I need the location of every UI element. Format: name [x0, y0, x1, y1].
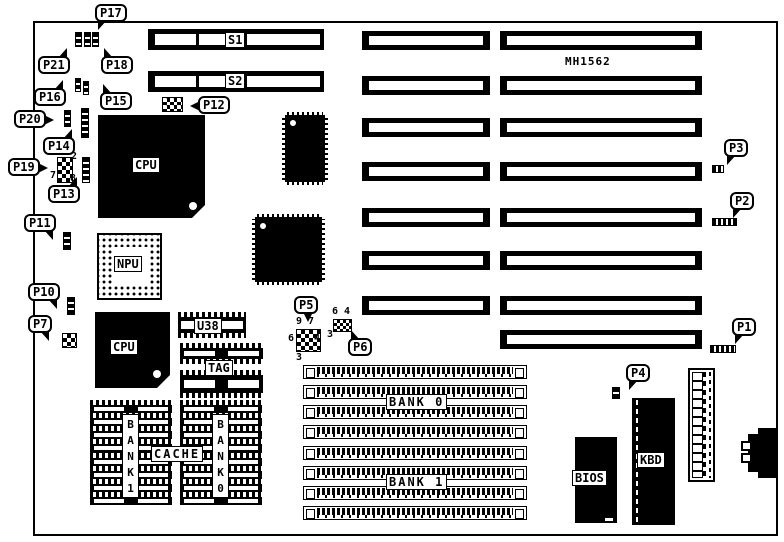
jumper-p17	[84, 32, 91, 47]
callout-p7: P7	[28, 315, 52, 333]
s2-label: S2	[225, 73, 245, 89]
isa-slot	[500, 162, 702, 181]
cpu-pin1-dot	[189, 202, 197, 210]
cache-bank0-label: BANK0	[212, 414, 229, 498]
callout-p2: P2	[730, 192, 754, 210]
bank1-label: BANK 1	[386, 474, 447, 490]
callout-label: P12	[203, 98, 225, 112]
kbd-label: KBD	[637, 452, 665, 468]
callout-p3: P3	[724, 139, 748, 157]
switch-segment	[155, 34, 196, 45]
qfp-chip	[285, 115, 325, 182]
switch-segment	[155, 76, 196, 87]
callout-label: P21	[43, 58, 65, 72]
isa-slot	[500, 208, 702, 227]
isa-slot	[500, 251, 702, 270]
isa-slot	[362, 31, 490, 50]
callout-p5: P5	[294, 296, 318, 314]
isa-slot	[500, 31, 702, 50]
isa-slot	[500, 296, 702, 315]
pin-number: 3	[296, 353, 302, 363]
s1-label: S1	[225, 32, 245, 48]
din-socket-pin	[741, 453, 752, 463]
switch-segment	[199, 34, 227, 45]
pin-number: 4	[344, 307, 350, 317]
isa-slot	[500, 330, 702, 349]
jumper-p18	[92, 32, 99, 47]
isa-slot	[362, 296, 490, 315]
power-edge-strip	[709, 372, 711, 478]
pin-number: 7	[50, 171, 56, 181]
connector-p2	[712, 218, 737, 226]
callout-label: P19	[13, 160, 35, 174]
isa-slot	[362, 118, 490, 137]
keyboard-din-connector	[758, 428, 778, 478]
callout-p14: P14	[43, 137, 75, 155]
callout-label: P11	[29, 216, 51, 230]
callout-label: P16	[39, 90, 61, 104]
callout-p21: P21	[38, 56, 70, 74]
power-pin-column	[692, 372, 703, 478]
jumper-p21	[75, 32, 82, 47]
jumper-p4	[612, 387, 620, 399]
jumper-p15	[83, 81, 89, 95]
cpu-main-label: CPU	[132, 157, 160, 173]
bios-notch	[605, 518, 613, 521]
switch-segment	[199, 76, 227, 87]
jumper-p10	[67, 297, 75, 315]
pin-number: 6	[332, 307, 338, 317]
callout-label: P10	[33, 285, 55, 299]
callout-label: P3	[729, 141, 743, 155]
pin-number: 3	[327, 330, 333, 340]
jumper-p14	[81, 108, 89, 138]
isa-slot	[362, 162, 490, 181]
motherboard-diagram: S1 S2 MH1562 CPU NPU CPU	[0, 0, 784, 542]
isa-slot	[362, 76, 490, 95]
jumper-p12	[162, 97, 183, 112]
cache-chip-row	[90, 400, 172, 413]
callout-p18: P18	[101, 56, 133, 74]
din-socket-pin	[741, 441, 752, 451]
qfp-chip	[255, 217, 322, 282]
callout-label: P17	[100, 6, 122, 20]
connector-p1	[710, 345, 736, 353]
cache-chip-row	[180, 400, 262, 413]
callout-p12: P12	[198, 96, 230, 114]
jumper-p6	[333, 319, 352, 332]
pin-number: 4	[314, 334, 320, 344]
callout-p10: P10	[28, 283, 60, 301]
simm-socket	[303, 446, 527, 460]
callout-p4: P4	[626, 364, 650, 382]
callout-p19: P19	[8, 158, 40, 176]
pin-number: 6	[288, 334, 294, 344]
cpu-pin1-dot	[153, 370, 161, 378]
chip-pin1-dot	[260, 223, 266, 229]
callout-p20: P20	[14, 110, 46, 128]
callout-label: P1	[737, 320, 751, 334]
callout-p11: P11	[24, 214, 56, 232]
bank0-label: BANK 0	[386, 394, 447, 410]
callout-p6: P6	[348, 338, 372, 356]
jumper-p20	[64, 110, 71, 127]
pin-number: 9	[296, 317, 302, 327]
isa-slot	[362, 251, 490, 270]
jumper-p16	[75, 78, 81, 92]
switch-segment	[247, 34, 320, 45]
callout-p16: P16	[34, 88, 66, 106]
callout-label: P13	[53, 187, 75, 201]
callout-label: P18	[106, 58, 128, 72]
jumper-p13	[82, 157, 90, 183]
callout-p13: P13	[48, 185, 80, 203]
callout-label: P15	[105, 94, 127, 108]
cache-bank1-label: BANK1	[122, 414, 139, 498]
callout-label: P20	[19, 112, 41, 126]
board-part-number: MH1562	[565, 55, 611, 68]
callout-label: P14	[48, 139, 70, 153]
callout-p15: P15	[100, 92, 132, 110]
simm-socket	[303, 506, 527, 520]
power-connector	[688, 368, 715, 482]
isa-slot	[500, 76, 702, 95]
cache-label: CACHE	[151, 446, 203, 462]
chip-pin1-dot	[290, 120, 296, 126]
callout-p1: P1	[732, 318, 756, 336]
bios-label: BIOS	[572, 470, 607, 486]
jumper-p3	[712, 165, 724, 173]
tag-label: TAG	[205, 360, 233, 376]
callout-label: P5	[299, 298, 313, 312]
isa-slot	[500, 118, 702, 137]
simm-socket	[303, 365, 527, 379]
simm-socket	[303, 425, 527, 439]
callout-p17: P17	[95, 4, 127, 22]
jumper-p11	[63, 232, 71, 250]
jumper-p7	[62, 333, 77, 348]
npu-label: NPU	[114, 256, 142, 272]
power-key-strip	[703, 372, 706, 478]
switch-segment	[247, 76, 320, 87]
cpu-secondary-label: CPU	[110, 339, 138, 355]
callout-label: P2	[735, 194, 749, 208]
callout-label: P7	[33, 317, 47, 331]
u38-label: U38	[194, 318, 222, 334]
isa-slot	[362, 208, 490, 227]
callout-label: P6	[353, 340, 367, 354]
callout-label: P4	[631, 366, 645, 380]
